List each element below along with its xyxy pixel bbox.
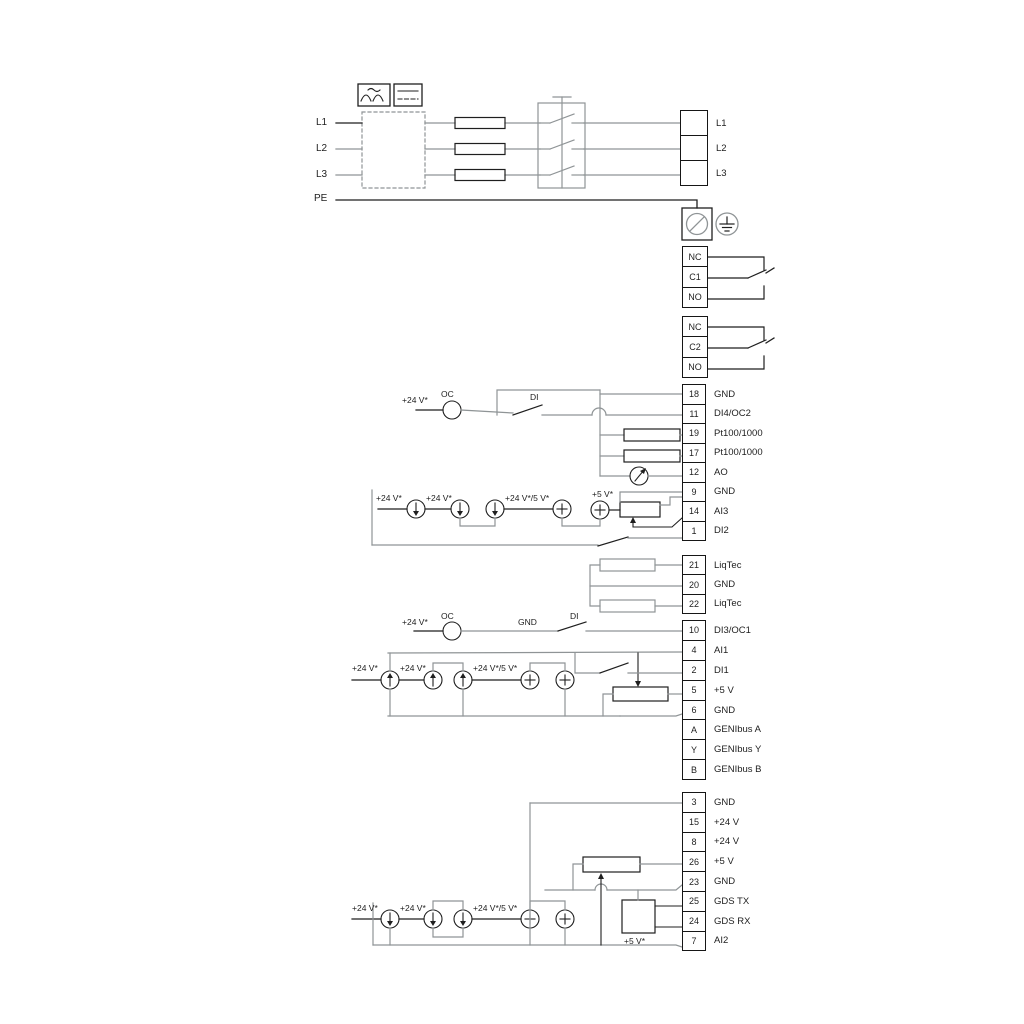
terminal-row: L3 [680, 160, 727, 186]
terminal-number: 19 [682, 423, 706, 444]
terminal-row: 19Pt100/1000 [682, 423, 763, 444]
voltage-source-icon [556, 910, 574, 928]
ai3-supply-options [378, 500, 600, 526]
terminal-number: 3 [682, 792, 706, 813]
terminal-label: LiqTec [714, 560, 741, 571]
terminal-row: 14AI3 [682, 501, 763, 522]
terminal-row: 9GND [682, 482, 763, 503]
ai2-gds-circuit [373, 803, 682, 947]
power-label-pe: PE [314, 193, 327, 204]
supply-label: +24 V* [352, 903, 378, 913]
fuse-icon [455, 118, 505, 181]
terminal-number: Y [682, 739, 706, 760]
relay-contact-icon [708, 257, 774, 299]
terminal-label: +24 V [714, 836, 739, 847]
terminal-row: L1 [680, 110, 727, 136]
supply-label: +24 V* [352, 663, 378, 673]
terminal-row: 10DI3/OC1 [682, 620, 762, 641]
terminal-row: NO [682, 287, 708, 308]
terminal-row: 23GND [682, 871, 750, 892]
terminal-number: 11 [682, 404, 706, 425]
terminal-label: L1 [716, 118, 727, 129]
supply-label: +5 V* [592, 489, 613, 499]
terminal-number: 6 [682, 700, 706, 721]
terminal-label: Pt100/1000 [714, 447, 763, 458]
terminal-number: 24 [682, 911, 706, 932]
terminal-number: 25 [682, 891, 706, 912]
terminal-label: GND [714, 876, 735, 887]
terminal-label: GDS RX [714, 916, 750, 927]
terminal-label: AO [714, 467, 728, 478]
supply-label: +24 V*/5 V* [473, 663, 517, 673]
terminal-label: AI3 [714, 506, 728, 517]
liqtec-sensor-circuit [590, 559, 682, 612]
terminal-row: BGENIbus B [682, 759, 762, 780]
terminal-block-io2: 10DI3/OC1 4AI1 2DI1 5+5 V 6GND AGENIbus … [682, 620, 762, 780]
terminal-row: 18GND [682, 384, 763, 405]
oc-label: OC [441, 611, 454, 621]
terminal-row: 6GND [682, 700, 762, 721]
terminal-number: A [682, 719, 706, 740]
terminal-row: NC [682, 246, 708, 267]
terminal-number: 18 [682, 384, 706, 405]
terminal-row: L2 [680, 135, 727, 161]
oc-source-icon [443, 401, 461, 419]
power-label-l1: L1 [316, 117, 327, 128]
emc-filter-box [362, 112, 425, 188]
terminal-number: C2 [682, 336, 708, 357]
relay-contact-icon [708, 327, 774, 369]
terminal-row: C2 [682, 336, 708, 357]
terminal-row: 2DI1 [682, 660, 762, 681]
terminal-label: GENIbus Y [714, 744, 761, 755]
protective-earth-icon [716, 213, 738, 235]
terminal-row: 24GDS RX [682, 911, 750, 932]
potentiometer-icon [613, 687, 668, 701]
terminal-number: 26 [682, 851, 706, 872]
terminal-row: 1DI2 [682, 521, 763, 542]
pe-screw-terminal-icon [682, 208, 712, 240]
terminal-label: GND [714, 705, 735, 716]
potentiometer-icon [620, 502, 660, 517]
terminal-row: 17Pt100/1000 [682, 443, 763, 464]
terminal-label: +5 V [714, 856, 734, 867]
supply-label: +24 V* [376, 493, 402, 503]
supply-label: +24 V* [402, 395, 428, 405]
terminal-row: 20GND [682, 574, 741, 594]
wiring-diagram-svg [0, 0, 1024, 1024]
terminal-row: 22LiqTec [682, 594, 741, 614]
resistor-icon [600, 559, 655, 571]
voltage-source-icon [553, 500, 571, 518]
terminal-number: 1 [682, 521, 706, 542]
terminal-row: 21LiqTec [682, 555, 741, 575]
terminal-label: Pt100/1000 [714, 428, 763, 439]
supply-label: +5 V* [624, 936, 645, 946]
terminal-row: 11DI4/OC2 [682, 404, 763, 425]
terminal-row: 26+5 V [682, 851, 750, 872]
di-label: DI [570, 611, 579, 621]
terminal-label: GENIbus A [714, 724, 761, 735]
supply-label: +24 V*/5 V* [473, 903, 517, 913]
terminal-label: AI2 [714, 935, 728, 946]
terminal-label: GND [714, 389, 735, 400]
supply-label: +24 V* [402, 617, 428, 627]
ai1-setpoint-circuit [388, 652, 682, 716]
terminal-row: NO [682, 357, 708, 378]
terminal-block-relay1: NC C1 NO [682, 246, 708, 308]
terminal-label: DI2 [714, 525, 729, 536]
supply-label: +24 V* [426, 493, 452, 503]
terminal-number: 9 [682, 482, 706, 503]
terminal-label: +24 V [714, 817, 739, 828]
terminal-row: 3GND [682, 792, 750, 813]
power-label-l3: L3 [316, 169, 327, 180]
terminal-block-liqtec: 21LiqTec 20GND 22LiqTec [682, 555, 741, 614]
terminal-cell [680, 110, 708, 136]
terminal-row: 8+24 V [682, 832, 750, 853]
terminal-number: 23 [682, 871, 706, 892]
voltage-source-icon [591, 501, 609, 519]
pt100-sensors [600, 429, 682, 462]
terminal-label: GENIbus B [714, 764, 762, 775]
potentiometer-icon [583, 857, 640, 872]
terminal-number: 5 [682, 680, 706, 701]
terminal-number: 4 [682, 640, 706, 661]
di-label: DI [530, 392, 539, 402]
terminal-number: 7 [682, 931, 706, 952]
terminal-number: 12 [682, 462, 706, 483]
terminal-cell [680, 135, 708, 161]
terminal-number: 8 [682, 832, 706, 853]
supply-label: +24 V*/5 V* [505, 493, 549, 503]
terminal-row: 15+24 V [682, 812, 750, 833]
di4-oc2-circuit [416, 390, 682, 476]
voltage-source-icon [521, 671, 539, 689]
terminal-block-io1: 18GND 11DI4/OC2 19Pt100/1000 17Pt100/100… [682, 384, 763, 541]
terminal-label: L3 [716, 168, 727, 179]
gnd-label: GND [518, 617, 537, 627]
terminal-block-mains: L1 L2 L3 [680, 110, 727, 186]
terminal-row: 25GDS TX [682, 891, 750, 912]
voltage-source-icon [556, 671, 574, 689]
terminal-row: 7AI2 [682, 931, 750, 952]
terminal-number: 14 [682, 501, 706, 522]
terminal-label: GND [714, 486, 735, 497]
wiring-diagram-page: L1 L2 L3 PE +24 V* OC DI +24 V* +24 V* +… [0, 0, 1024, 1024]
terminal-label: LiqTec [714, 598, 741, 609]
terminal-number: NC [682, 246, 708, 267]
terminal-number: NO [682, 287, 708, 308]
terminal-row: C1 [682, 266, 708, 287]
resistor-icon [600, 600, 655, 612]
terminal-number: NO [682, 357, 708, 378]
di3-oc1-circuit [414, 622, 682, 640]
terminal-cell [680, 160, 708, 186]
input-wires [336, 123, 697, 208]
analog-output-circuit [600, 467, 682, 485]
terminal-label: GND [714, 797, 735, 808]
terminal-number: 2 [682, 660, 706, 681]
terminal-number: 10 [682, 620, 706, 641]
terminal-row: AGENIbus A [682, 719, 762, 740]
ac-waveform-icon [358, 84, 390, 106]
dc-voltage-icon [394, 84, 422, 106]
terminal-label: DI1 [714, 665, 729, 676]
di-switch-box [497, 390, 600, 415]
terminal-number: 22 [682, 594, 706, 614]
terminal-number: 21 [682, 555, 706, 575]
terminal-row: 4AI1 [682, 640, 762, 661]
oc-label: OC [441, 389, 454, 399]
power-label-l2: L2 [316, 143, 327, 154]
terminal-row: 12AO [682, 462, 763, 483]
gds-sensor-box [622, 900, 655, 933]
terminal-label: GDS TX [714, 896, 749, 907]
resistor-icon [624, 429, 680, 441]
ai2-supply-options [352, 901, 574, 945]
terminal-label: AI1 [714, 645, 728, 656]
contactor-icon [538, 97, 585, 188]
resistor-icon [624, 450, 680, 462]
terminal-label: DI4/OC2 [714, 408, 751, 419]
terminal-block-io3: 3GND 15+24 V 8+24 V 26+5 V 23GND 25GDS T… [682, 792, 750, 951]
terminal-row: NC [682, 316, 708, 337]
terminal-label: L2 [716, 143, 727, 154]
terminal-number: B [682, 759, 706, 780]
supply-label: +24 V* [400, 663, 426, 673]
terminal-row: YGENIbus Y [682, 739, 762, 760]
supply-label: +24 V* [400, 903, 426, 913]
terminal-number: 15 [682, 812, 706, 833]
terminal-number: NC [682, 316, 708, 337]
terminal-label: DI3/OC1 [714, 625, 751, 636]
terminal-label: +5 V [714, 685, 734, 696]
terminal-number: 20 [682, 574, 706, 594]
terminal-block-relay2: NC C2 NO [682, 316, 708, 378]
terminal-number: C1 [682, 266, 708, 287]
terminal-number: 17 [682, 443, 706, 464]
terminal-label: GND [714, 579, 735, 590]
terminal-row: 5+5 V [682, 680, 762, 701]
oc-source-icon [443, 622, 461, 640]
